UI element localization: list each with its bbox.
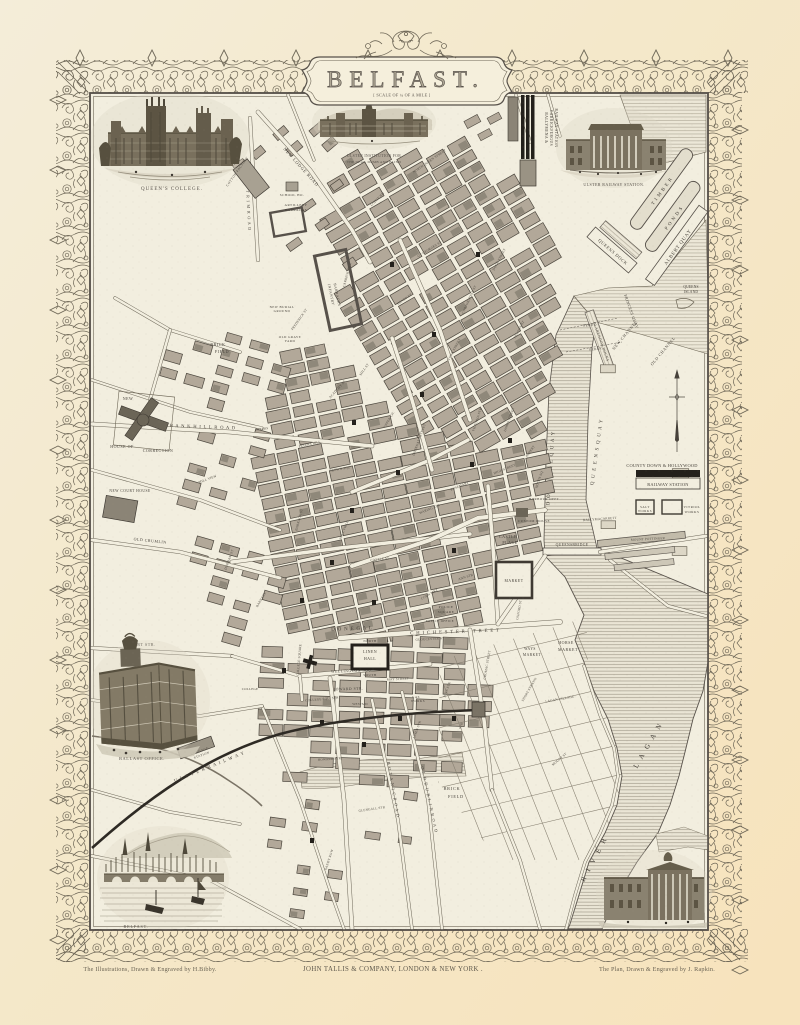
svg-text:BELFAST.: BELFAST.: [327, 67, 485, 92]
svg-text:The Illustrations, Drawn & Eng: The Illustrations, Drawn & Engraved by H…: [83, 966, 216, 973]
svg-text:JOHN TALLIS & COMPANY, LOND: JOHN TALLIS & COMPANY, LONDON & NEW YORK…: [303, 966, 483, 973]
svg-text:The Plan, Drawn & Engraved by: The Plan, Drawn & Engraved by J. Rapkin.: [599, 966, 715, 973]
svg-text:[ SCALE OF ¼ OF A MILE ]: [ SCALE OF ¼ OF A MILE ]: [373, 93, 431, 98]
